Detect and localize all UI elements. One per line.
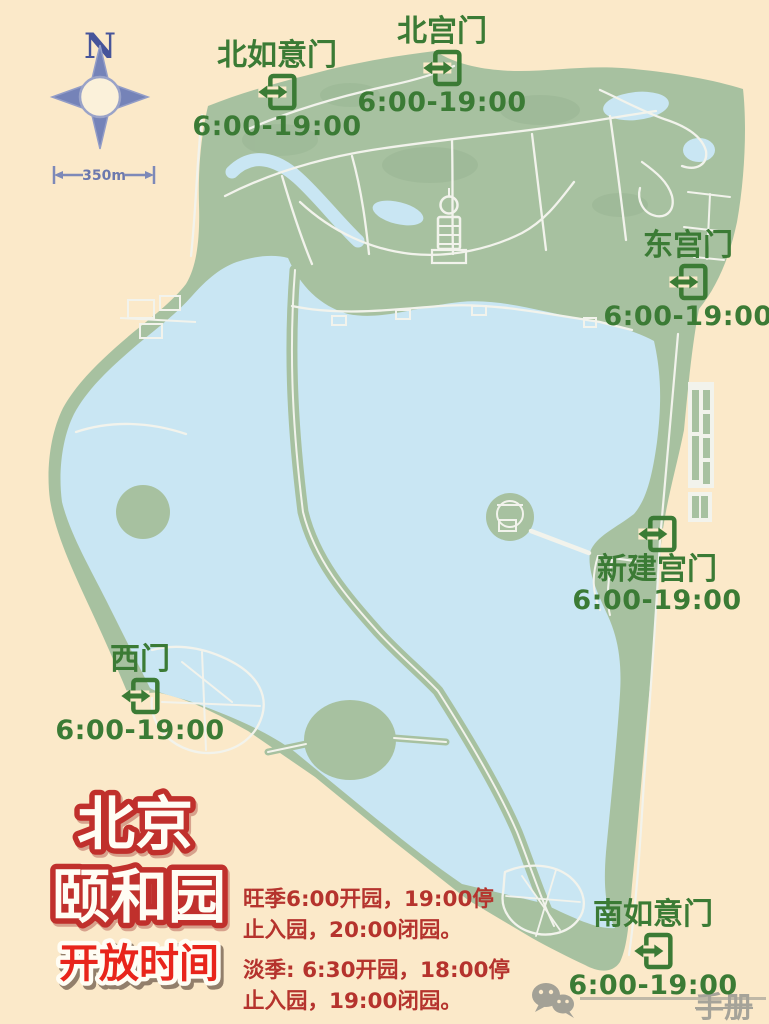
- gate-name: 西门: [110, 644, 170, 676]
- gate-name: 北如意门: [217, 40, 337, 72]
- entrance-arrow-icon: [637, 515, 677, 553]
- gate-south-ruyi: 南如意门 6:00-19:00: [568, 899, 737, 1000]
- gate-hours: 6:00-19:00: [572, 586, 741, 616]
- scale-bar: 350m: [50, 162, 158, 188]
- gate-hours: 6:00-19:00: [603, 302, 769, 332]
- gate-hours: 6:00-19:00: [192, 112, 361, 142]
- title-block: 北京 颐和园 开放时间: [35, 772, 250, 990]
- entrance-arrow-icon: [120, 677, 160, 715]
- poster: N 350m 手册 北如意门: [0, 0, 769, 1024]
- gate-name: 东宫门: [643, 230, 733, 262]
- title-subtitle: 开放时间: [59, 941, 219, 987]
- gate-xinjian-gong: 新建宫门 6:00-19:00: [572, 514, 741, 615]
- compass-rose: N: [48, 14, 156, 154]
- gate-east-gong: 东宫门 6:00-19:00: [603, 230, 769, 331]
- round-island: [116, 485, 170, 539]
- compass-center: [80, 77, 120, 117]
- entrance-arrow-icon: [633, 932, 673, 970]
- off-season-hours: 淡季: 6:30开园，18:00停止入园，19:00闭园。: [243, 955, 511, 1017]
- gate-name: 新建宫门: [597, 554, 717, 586]
- gate-hours: 6:00-19:00: [357, 88, 526, 118]
- south-island: [304, 700, 396, 780]
- gate-west: 西门 6:00-19:00: [55, 644, 224, 745]
- title-park: 颐和园: [52, 863, 226, 931]
- gate-name: 北宫门: [397, 16, 487, 48]
- entrance-arrow-icon: [257, 73, 297, 111]
- gate-north-ruyi: 北如意门 6:00-19:00: [192, 40, 361, 141]
- gate-name: 南如意门: [593, 899, 713, 931]
- peak-season-hours: 旺季6:00开园，19:00停止入园，20:00闭园。: [243, 884, 511, 946]
- title-city: 北京: [77, 790, 193, 858]
- opening-hours-text: 旺季6:00开园，19:00停止入园，20:00闭园。 淡季: 6:30开园，1…: [243, 884, 511, 1024]
- entrance-arrow-icon: [668, 263, 708, 301]
- scale-label: 350m: [82, 168, 126, 184]
- gate-hours: 6:00-19:00: [55, 716, 224, 746]
- gate-hours: 6:00-19:00: [568, 971, 737, 1001]
- entrance-arrow-icon: [422, 49, 462, 87]
- gate-north-gong: 北宫门 6:00-19:00: [357, 16, 526, 117]
